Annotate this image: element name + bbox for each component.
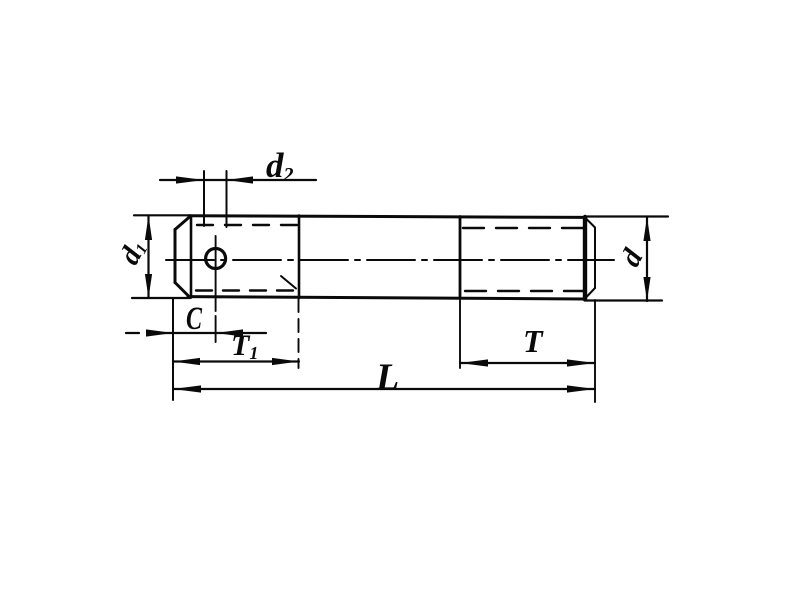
svg-text:T: T <box>523 323 544 359</box>
svg-text:d: d <box>614 244 649 272</box>
svg-text:C: C <box>186 301 203 337</box>
svg-text:d1: d1 <box>113 235 152 270</box>
svg-text:d2: d2 <box>266 146 294 186</box>
svg-text:L: L <box>375 357 399 399</box>
